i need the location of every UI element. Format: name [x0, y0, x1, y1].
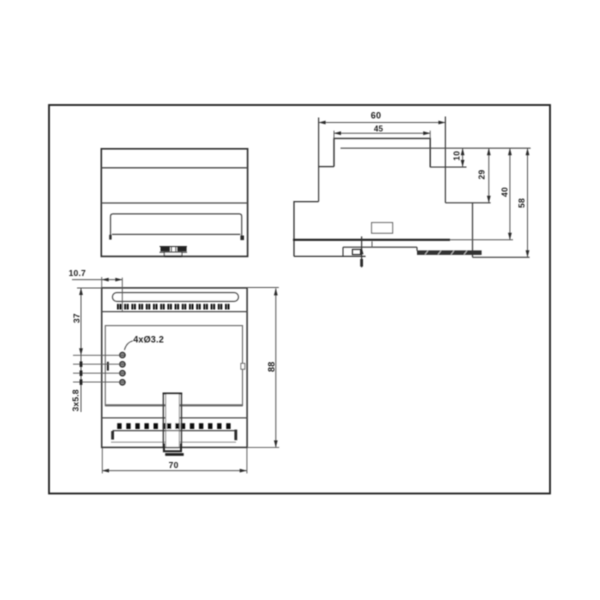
svg-text:45: 45 [374, 124, 384, 133]
svg-text:4xØ3.2: 4xØ3.2 [133, 335, 164, 345]
svg-text:70: 70 [169, 460, 179, 470]
svg-text:29: 29 [477, 170, 487, 180]
svg-text:3x5.8: 3x5.8 [71, 389, 81, 411]
svg-text:10: 10 [452, 151, 462, 161]
svg-text:60: 60 [371, 111, 381, 121]
svg-text:88: 88 [267, 362, 277, 372]
svg-text:37: 37 [72, 313, 82, 323]
svg-text:10.7: 10.7 [69, 268, 86, 278]
svg-text:40: 40 [499, 187, 509, 197]
svg-text:58: 58 [516, 198, 526, 208]
